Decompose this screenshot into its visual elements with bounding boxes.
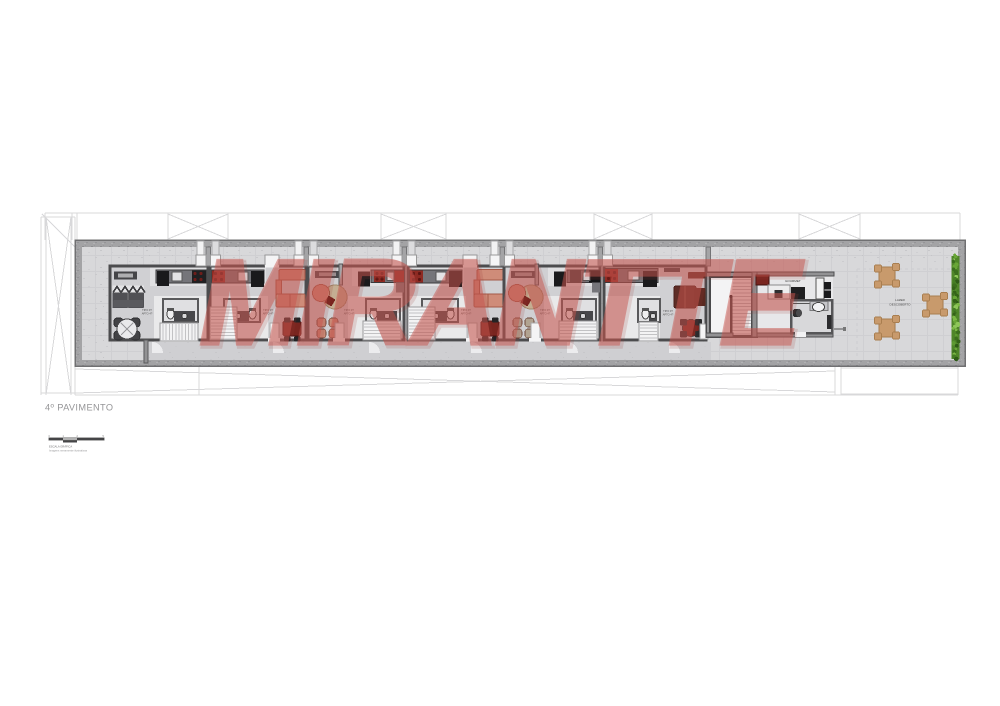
svg-text:ESCALA GRÁFICA: ESCALA GRÁFICA [49,445,72,449]
svg-text:TIPO 0?: TIPO 0? [142,308,152,312]
svg-text:LAZER: LAZER [895,298,906,302]
svg-text:4º PAVIMENTO: 4º PAVIMENTO [45,403,113,413]
svg-text:Imagens meramente ilustrativas: Imagens meramente ilustrativas [49,449,88,453]
svg-text:DESCOBERTO: DESCOBERTO [890,302,912,306]
svg-text:APTO 4?: APTO 4? [142,312,153,316]
svg-text:MIRANTTE: MIRANTTE [200,236,804,370]
